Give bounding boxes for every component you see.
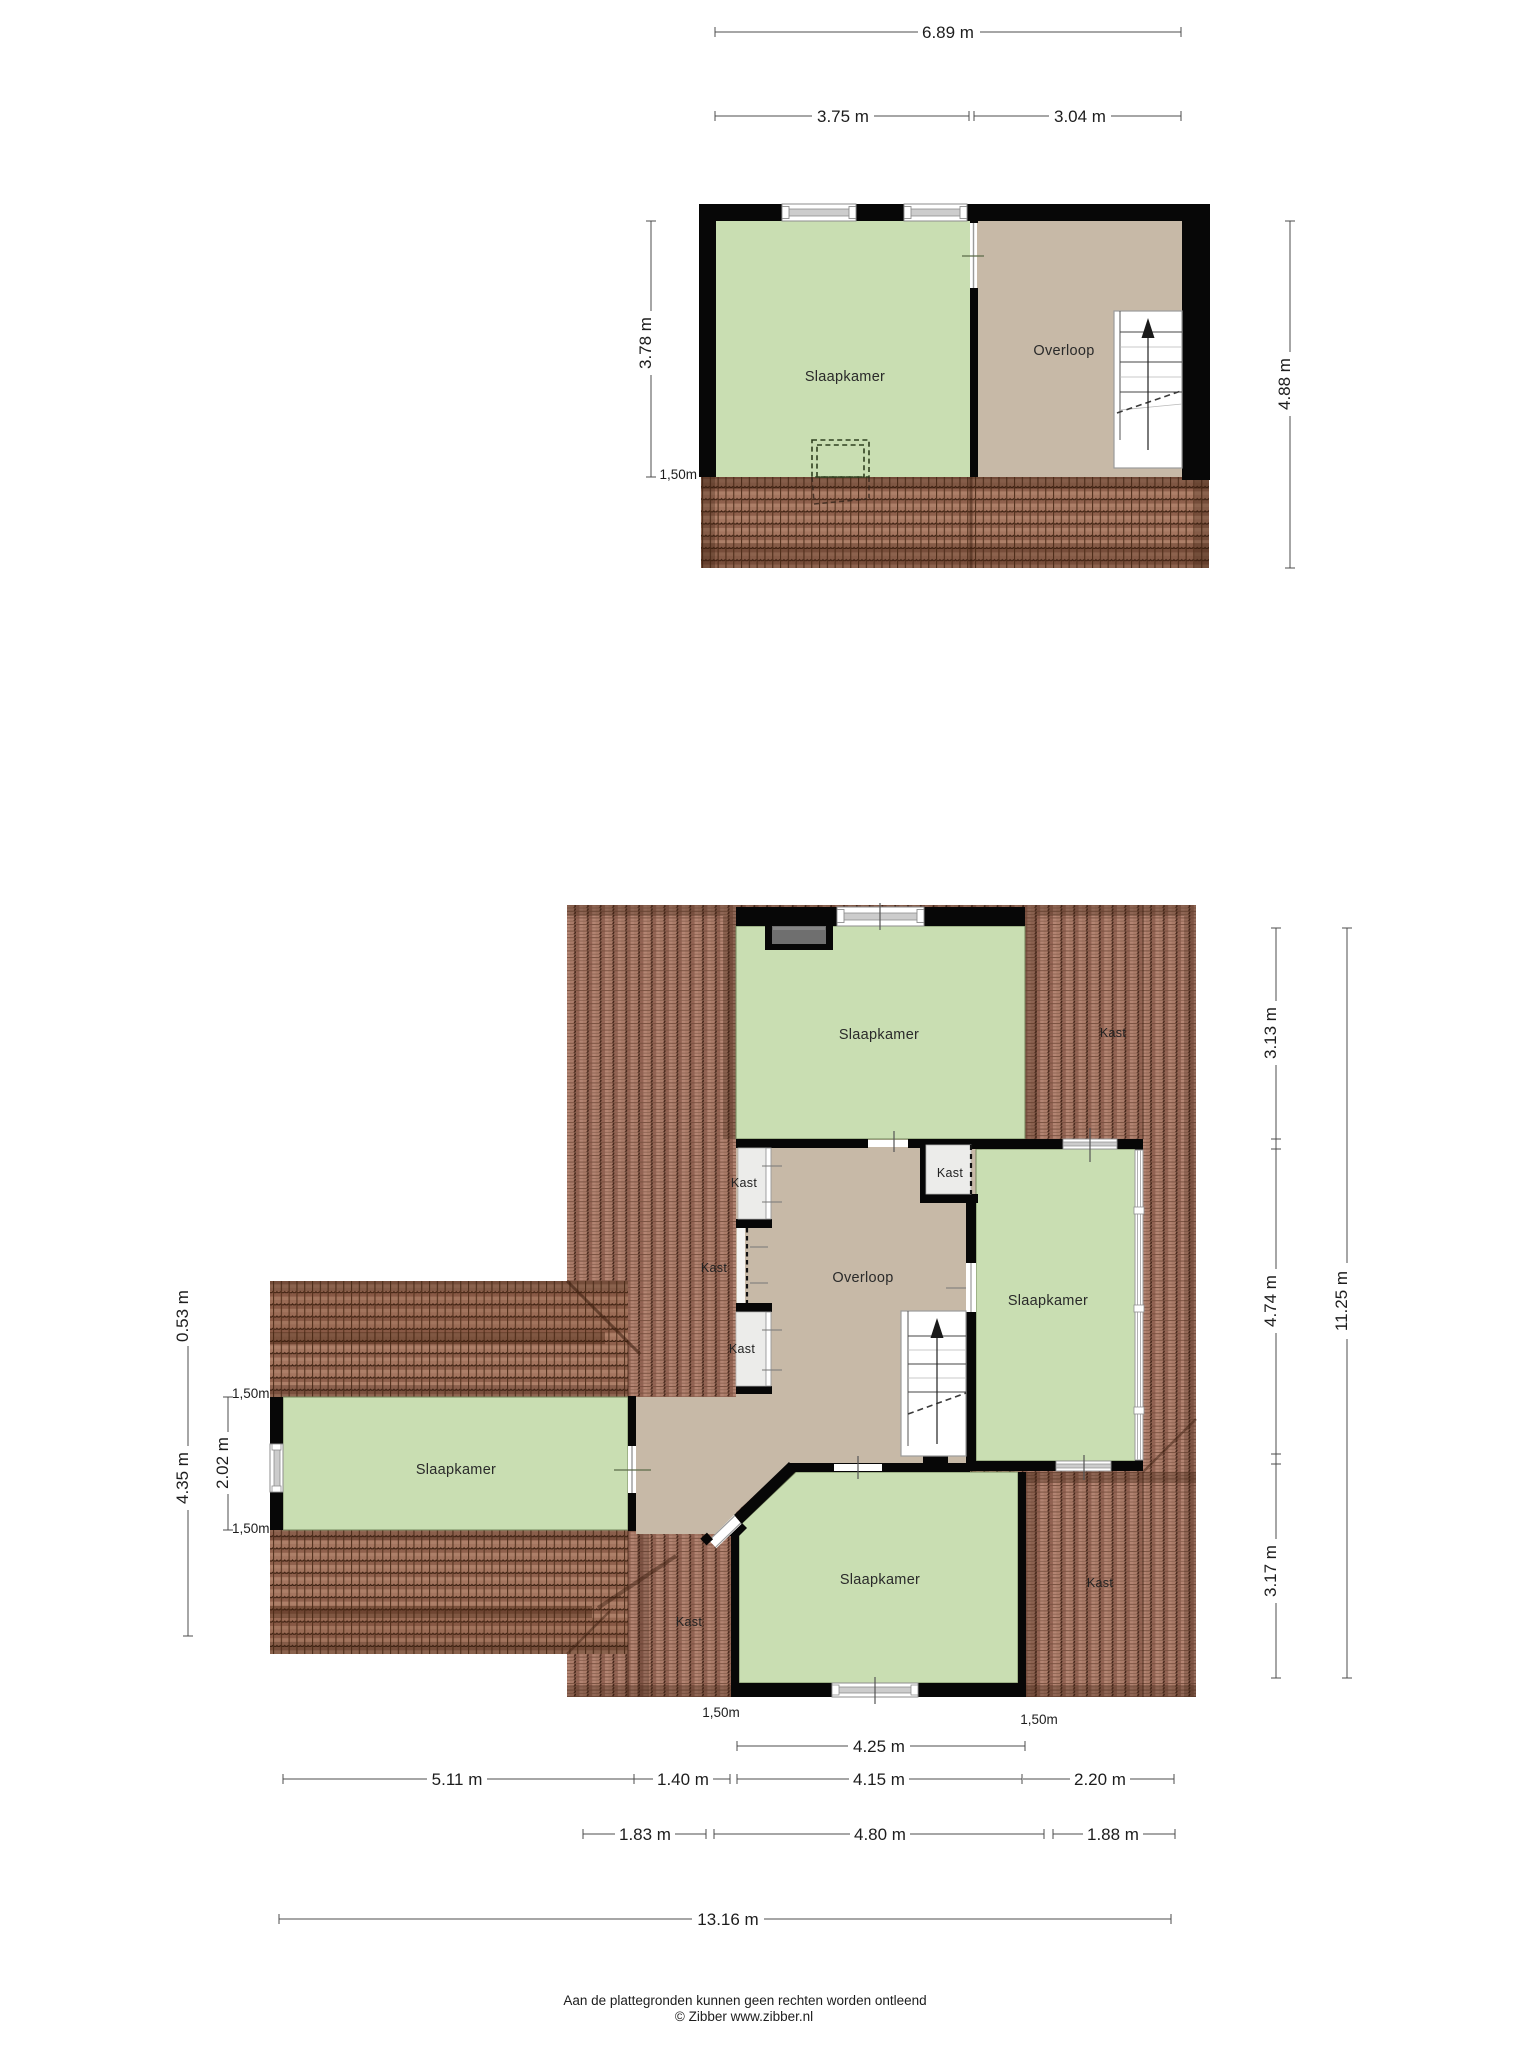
svg-text:Slaapkamer: Slaapkamer [839,1027,919,1043]
svg-text:Aan de plattegronden kunnen ge: Aan de plattegronden kunnen geen rechten… [563,1993,926,2008]
svg-text:Overloop: Overloop [1033,343,1094,359]
svg-text:1.88 m: 1.88 m [1087,1825,1139,1844]
svg-text:Slaapkamer: Slaapkamer [805,369,885,385]
svg-text:1.83 m: 1.83 m [619,1825,671,1844]
svg-text:1,50m: 1,50m [1020,1712,1058,1727]
svg-text:5.11 m: 5.11 m [432,1770,483,1789]
svg-text:4.35 m: 4.35 m [173,1452,192,1504]
svg-text:2.02 m: 2.02 m [213,1437,232,1489]
svg-text:Kast: Kast [701,1261,727,1275]
svg-text:3.75 m: 3.75 m [817,107,869,126]
svg-text:0.53 m: 0.53 m [173,1290,192,1342]
svg-text:Kast: Kast [676,1615,702,1629]
svg-text:1,50m: 1,50m [702,1705,740,1720]
svg-text:1.40 m: 1.40 m [657,1770,709,1789]
svg-text:13.16 m: 13.16 m [697,1910,758,1929]
svg-text:4.88 m: 4.88 m [1275,358,1294,410]
svg-text:Kast: Kast [937,1166,963,1180]
svg-text:1,50m: 1,50m [232,1386,270,1401]
svg-text:Slaapkamer: Slaapkamer [416,1462,496,1478]
svg-text:4.74 m: 4.74 m [1261,1275,1280,1327]
svg-text:Slaapkamer: Slaapkamer [840,1572,920,1588]
svg-text:Slaapkamer: Slaapkamer [1008,1293,1088,1309]
svg-text:4.25 m: 4.25 m [853,1737,905,1756]
svg-text:11.25 m: 11.25 m [1332,1271,1351,1331]
svg-text:3.17 m: 3.17 m [1261,1545,1280,1597]
svg-text:© Zibber www.zibber.nl: © Zibber www.zibber.nl [675,2009,813,2024]
svg-text:1,50m: 1,50m [659,467,697,482]
svg-text:1,50m: 1,50m [232,1521,270,1536]
svg-text:3.78 m: 3.78 m [636,317,655,369]
svg-text:Kast: Kast [1087,1576,1113,1590]
svg-text:6.89 m: 6.89 m [922,23,974,42]
svg-text:Kast: Kast [729,1342,755,1356]
svg-text:4.80 m: 4.80 m [854,1825,906,1844]
svg-text:Overloop: Overloop [832,1270,893,1286]
svg-text:2.20 m: 2.20 m [1074,1770,1126,1789]
svg-text:3.04 m: 3.04 m [1054,107,1106,126]
svg-text:Kast: Kast [731,1176,757,1190]
svg-text:3.13 m: 3.13 m [1261,1007,1280,1059]
svg-text:4.15 m: 4.15 m [853,1770,905,1789]
svg-text:Kast: Kast [1100,1026,1126,1040]
